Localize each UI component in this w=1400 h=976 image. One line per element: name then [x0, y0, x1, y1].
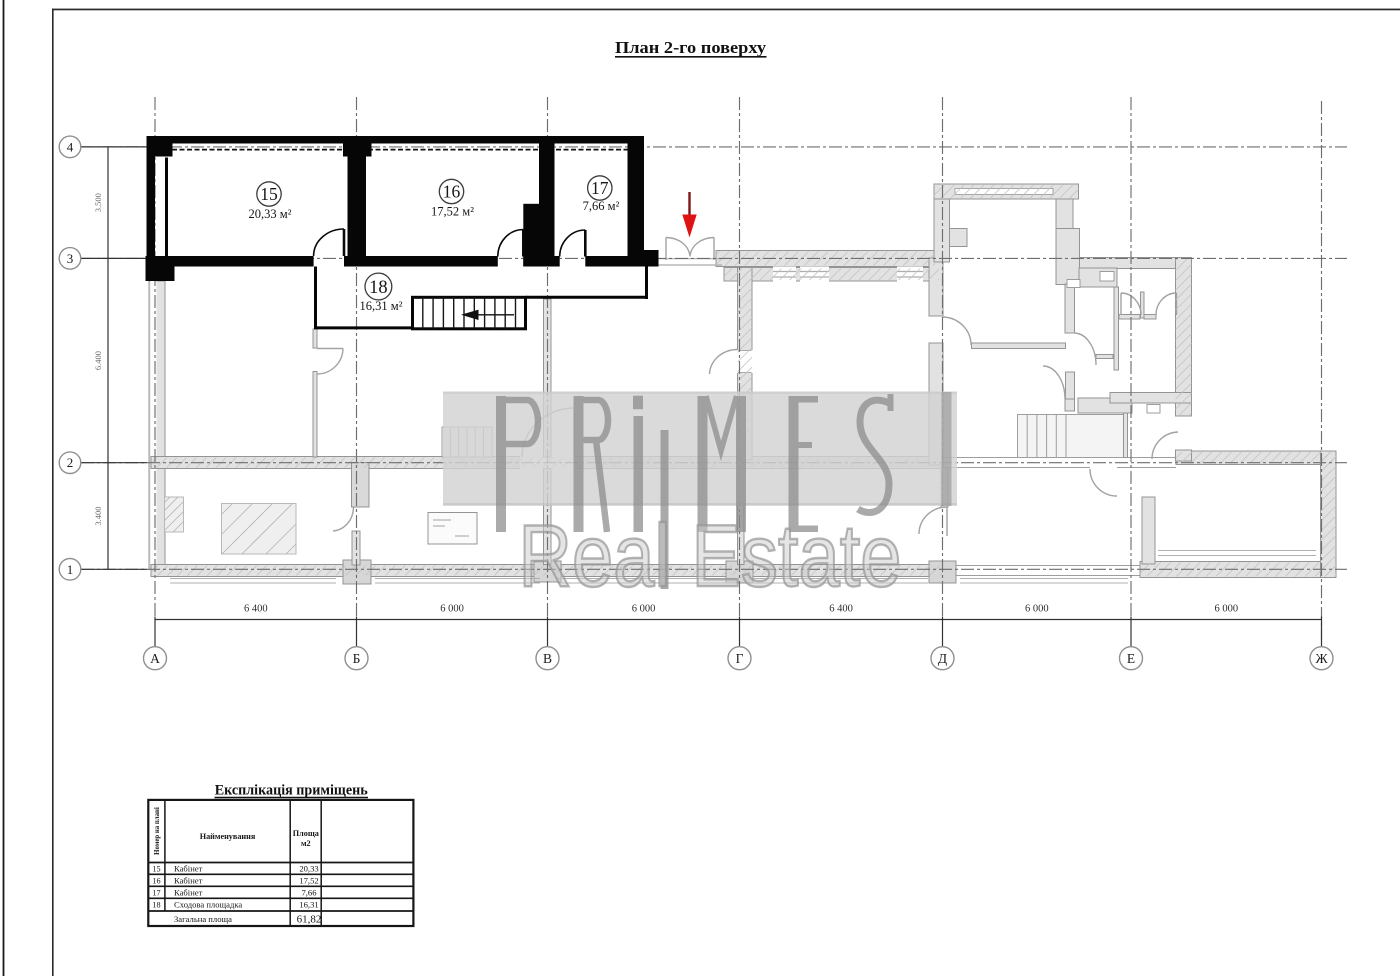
svg-text:3: 3	[67, 251, 74, 266]
svg-text:В: В	[543, 651, 552, 666]
svg-text:18: 18	[152, 900, 160, 909]
svg-text:20,33: 20,33	[299, 864, 318, 874]
svg-text:7,66: 7,66	[301, 887, 317, 897]
svg-text:Площа: Площа	[293, 829, 319, 838]
svg-text:Кабінет: Кабінет	[174, 887, 203, 897]
svg-text:6 000: 6 000	[440, 604, 464, 615]
svg-text:6.400: 6.400	[93, 351, 103, 370]
svg-text:20,33 м²: 20,33 м²	[249, 207, 292, 221]
svg-text:Сходова площадка: Сходова площадка	[174, 899, 242, 909]
svg-text:6 000: 6 000	[1214, 604, 1238, 615]
svg-text:2: 2	[67, 455, 74, 470]
svg-text:6 400: 6 400	[244, 604, 268, 615]
svg-text:А: А	[150, 651, 160, 666]
svg-text:м2: м2	[301, 839, 311, 848]
svg-text:15: 15	[152, 865, 160, 874]
svg-text:1: 1	[67, 562, 74, 577]
svg-text:16: 16	[443, 182, 461, 202]
svg-text:6 000: 6 000	[632, 604, 656, 615]
svg-text:3.400: 3.400	[93, 506, 103, 525]
svg-text:18: 18	[369, 278, 388, 298]
svg-text:Е: Е	[1127, 651, 1135, 666]
svg-text:Найменування: Найменування	[200, 832, 256, 841]
svg-text:3.500: 3.500	[93, 193, 103, 212]
svg-text:4: 4	[67, 139, 74, 154]
svg-text:Кабінет: Кабінет	[174, 875, 203, 885]
svg-text:6 400: 6 400	[829, 604, 853, 615]
svg-text:Експлікація приміщень: Експлікація приміщень	[215, 783, 368, 799]
svg-text:Real Estate: Real Estate	[519, 506, 902, 605]
svg-text:17: 17	[591, 178, 609, 198]
svg-text:Ж: Ж	[1315, 651, 1328, 666]
svg-text:16: 16	[152, 876, 160, 885]
svg-text:Номер на плані: Номер на плані	[154, 807, 161, 855]
svg-text:15: 15	[260, 184, 278, 204]
svg-text:Б: Б	[353, 651, 361, 666]
svg-text:Загальна площа: Загальна площа	[174, 914, 232, 924]
svg-text:Кабінет: Кабінет	[174, 864, 203, 874]
svg-text:16,31 м²: 16,31 м²	[360, 299, 403, 313]
svg-text:7,66 м²: 7,66 м²	[583, 199, 620, 213]
svg-text:17,52 м²: 17,52 м²	[431, 205, 474, 219]
svg-text:17,52: 17,52	[299, 875, 318, 885]
svg-text:Д: Д	[938, 651, 947, 666]
svg-text:61,82: 61,82	[297, 914, 322, 926]
svg-text:Г: Г	[736, 651, 744, 666]
svg-text:16,31: 16,31	[299, 899, 318, 909]
svg-text:6 000: 6 000	[1025, 604, 1049, 615]
svg-text:План 2-го поверху: План 2-го поверху	[615, 38, 767, 57]
svg-text:17: 17	[152, 888, 160, 897]
